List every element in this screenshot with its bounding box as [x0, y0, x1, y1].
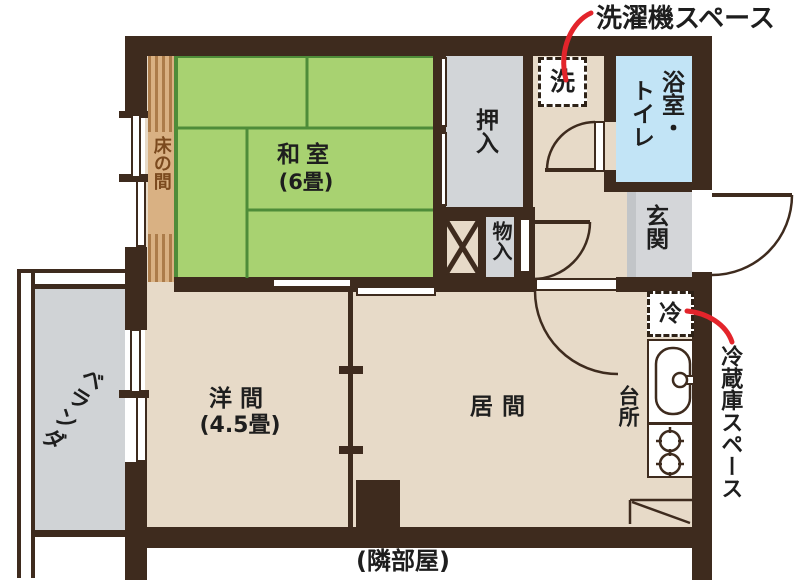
ima-name-label: 居間	[442, 394, 562, 420]
tokonoma-stripes-top	[148, 54, 174, 132]
wall-left-upper	[125, 36, 147, 114]
wall-left-middle	[125, 247, 147, 330]
bath-door-leaf	[594, 121, 605, 172]
kitchen-stove-counter	[647, 423, 694, 478]
fridge-mark: 冷	[659, 301, 682, 327]
veranda-rail-inner	[31, 269, 35, 578]
washitsu-name-label: 和室	[246, 142, 366, 168]
youma-name-label: 洋間	[180, 386, 300, 412]
veranda-slider-sash-2	[136, 396, 147, 462]
neighbor-room-label: (隣部屋)	[343, 548, 463, 576]
oshiire-label: 押入	[471, 108, 497, 154]
wall-right-lower	[692, 272, 712, 580]
hall-door-jamb	[519, 218, 531, 273]
bath-label-right: 浴室・	[657, 70, 683, 139]
window-sash-upper-1	[131, 114, 141, 178]
living-door-leaf	[535, 278, 618, 291]
veranda-rail-outer	[17, 269, 21, 578]
partition-stub	[356, 480, 400, 527]
tokonoma-label: 床の間	[150, 136, 171, 190]
floor-plan: 洗 冷	[0, 0, 800, 584]
shaft-x-box	[443, 217, 482, 277]
wall-bath-south	[604, 182, 694, 192]
wall-genkan-south	[616, 277, 694, 292]
mononyu-label: 物入	[489, 221, 512, 261]
genkan-step-edge	[627, 192, 636, 277]
window-sash-upper-2	[136, 180, 146, 247]
fusuma-washitsu-youma	[272, 278, 352, 288]
tokonoma-stripes-bottom	[148, 234, 174, 282]
entrance-opening	[692, 190, 712, 272]
washer-space-label: 洗濯機スペース	[596, 5, 775, 35]
fridge-space-box: 冷	[647, 291, 694, 337]
wall-right-upper	[692, 36, 712, 190]
daidokoro-label: 台所	[616, 385, 640, 427]
wall-left-lower	[125, 462, 147, 580]
veranda-slider-sash-1	[130, 329, 141, 393]
bath-label-left: トイレ	[627, 79, 653, 148]
wall-closet-east	[523, 54, 533, 217]
fusuma-closet-lower	[440, 132, 447, 206]
washer-mark: 洗	[550, 68, 575, 97]
washer-space-box: 洗	[538, 57, 587, 107]
washitsu-size-label: (6畳)	[246, 170, 366, 194]
partition-youma-ima	[348, 288, 353, 528]
wall-top	[125, 36, 712, 56]
fridge-space-label: 冷蔵庫スペース	[717, 345, 742, 499]
partition-tick-upper	[339, 366, 363, 374]
partition-tick-lower	[339, 446, 363, 454]
wall-bath-west-upper	[604, 54, 616, 122]
youma-size-label: (4.5畳)	[180, 413, 300, 438]
entrance-door-arc	[712, 195, 792, 275]
fusuma-closet-upper	[440, 57, 447, 127]
wall-bottom	[125, 527, 712, 548]
veranda-bottom-line	[33, 530, 125, 537]
genkan-label: 玄関	[641, 204, 667, 250]
kitchen-sink-counter	[647, 339, 694, 424]
veranda-top-line	[35, 284, 125, 289]
fusuma-washitsu-ima	[356, 286, 436, 296]
